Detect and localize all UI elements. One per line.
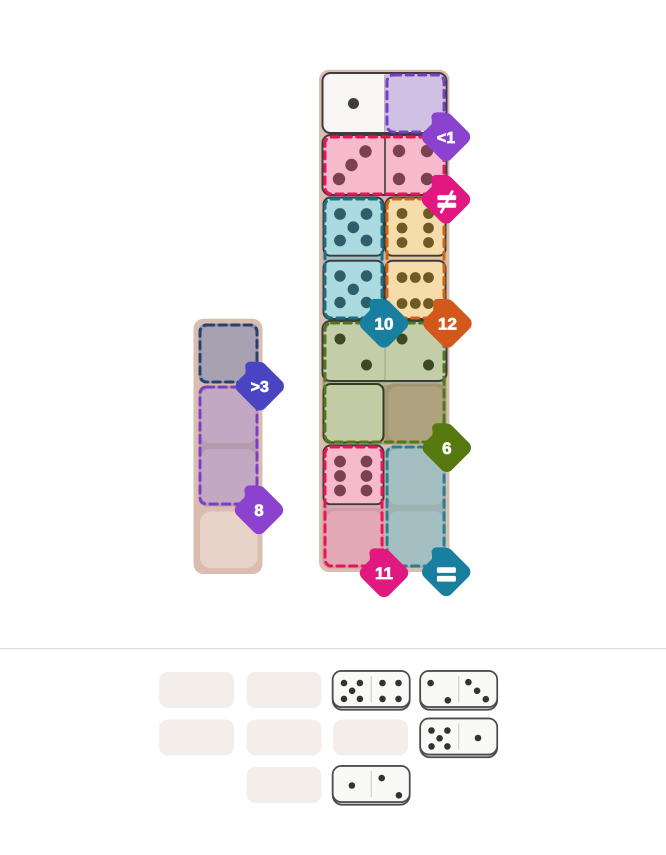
svg-text:8: 8 — [254, 501, 263, 520]
svg-text:10: 10 — [375, 315, 394, 334]
svg-text:6: 6 — [442, 439, 451, 458]
svg-text:<1: <1 — [437, 130, 455, 147]
svg-text:11: 11 — [375, 564, 393, 583]
svg-text:12: 12 — [438, 315, 457, 334]
svg-text:>3: >3 — [251, 379, 269, 396]
